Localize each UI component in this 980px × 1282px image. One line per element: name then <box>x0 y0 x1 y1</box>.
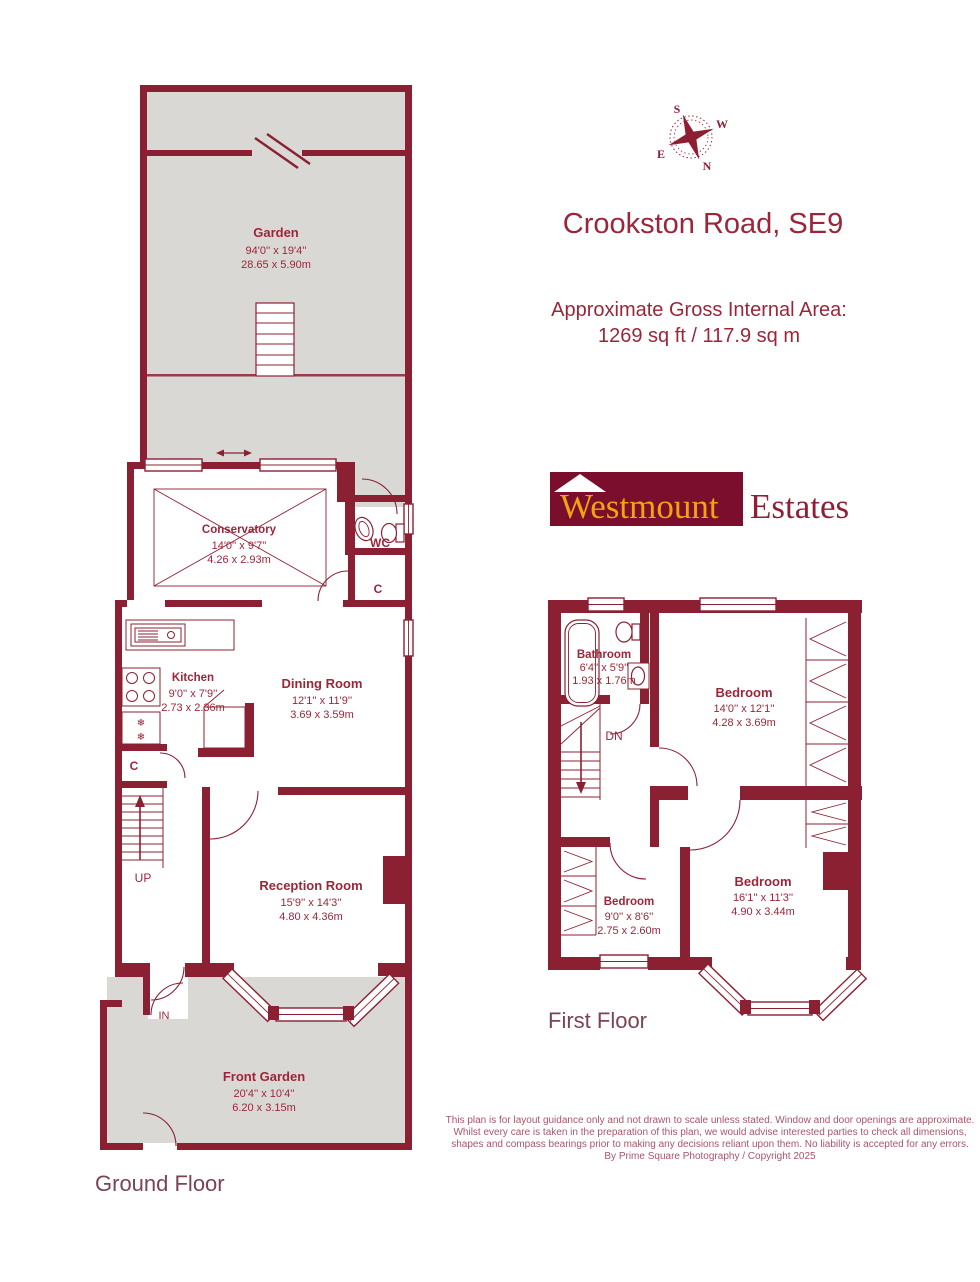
wc-wall-left <box>345 495 352 555</box>
svg-text:6.20 x 3.15m: 6.20 x 3.15m <box>232 1102 296 1114</box>
svg-text:16'1'' x 11'3'': 16'1'' x 11'3'' <box>733 892 793 904</box>
bedroom3-label: Bedroom 16'1'' x 11'3'' 4.90 x 3.44m <box>731 874 795 918</box>
garden-steps <box>256 303 294 376</box>
house-wall-top-seg1 <box>115 600 127 607</box>
bedroom2-wall-top <box>548 837 610 847</box>
wc-label: WC <box>370 536 390 550</box>
floorplan-svg: ❄ ❄ <box>0 0 980 1282</box>
kitchen-cupboard-wall-bottom <box>115 781 167 788</box>
ff-wall-left <box>548 600 561 970</box>
house-wall-top-seg3 <box>343 600 412 607</box>
svg-text:14'0'' x 9'7'': 14'0'' x 9'7'' <box>212 540 267 552</box>
logo-brand-text: Westmount <box>560 487 719 526</box>
svg-text:Garden: Garden <box>253 225 299 240</box>
bedroom2-label: Bedroom 9'0'' x 8'6'' 2.75 x 2.60m <box>597 896 661 937</box>
garden-wall-left <box>140 85 147 462</box>
svg-text:14'0'' x 12'1'': 14'0'' x 12'1'' <box>714 703 775 715</box>
svg-text:2.75 x 2.60m: 2.75 x 2.60m <box>597 925 661 937</box>
logo-suffix-text: Estates <box>750 487 849 526</box>
disclaimer-line: Whilst every care is taken in the prepar… <box>453 1127 966 1138</box>
svg-text:20'4'' x 10'4'': 20'4'' x 10'4'' <box>234 1088 295 1100</box>
svg-text:Bedroom: Bedroom <box>734 874 791 889</box>
conservatory-wall-left <box>127 462 134 600</box>
svg-text:12'1'' x 11'9'': 12'1'' x 11'9'' <box>292 695 352 707</box>
svg-text:Bedroom: Bedroom <box>604 896 654 908</box>
bathroom-wall-right <box>640 613 649 663</box>
bedroom3-chimney <box>823 852 848 890</box>
reception-fireplace <box>383 856 412 904</box>
reception-dividing-wall <box>278 787 412 795</box>
svg-text:Dining Room: Dining Room <box>282 676 363 691</box>
agency-logo: Westmount Estates <box>550 472 849 526</box>
snowflake-icon: ❄ <box>137 718 145 729</box>
svg-text:4.28 x 3.69m: 4.28 x 3.69m <box>712 717 776 729</box>
bedroom-divider-seg1 <box>650 786 688 800</box>
dining-window <box>404 620 413 656</box>
conservatory-window-right <box>260 459 336 471</box>
bedroom1-window <box>700 598 776 611</box>
compass-rose: S W E N <box>657 102 728 173</box>
front-gate-opening <box>143 1143 177 1150</box>
svg-text:4.26 x 2.93m: 4.26 x 2.93m <box>207 554 271 566</box>
ff-wall-bottom-seg1 <box>548 957 600 970</box>
wc-window <box>404 504 413 534</box>
disclaimer-line: By Prime Square Photography / Copyright … <box>604 1151 816 1162</box>
snowflake-icon: ❄ <box>137 732 145 743</box>
bedroom-divider-seg2 <box>740 786 862 800</box>
svg-text:94'0'' x 19'4'': 94'0'' x 19'4'' <box>246 245 307 257</box>
ground-floor-title: Ground Floor <box>95 1171 225 1196</box>
bathroom-window <box>588 598 624 611</box>
landing-wall-upper <box>650 613 659 747</box>
svg-text:Front Garden: Front Garden <box>223 1069 305 1084</box>
svg-text:Conservatory: Conservatory <box>202 524 277 536</box>
compass-south: S <box>674 102 681 116</box>
disclaimer-line: shapes and compass bearings prior to mak… <box>451 1139 969 1150</box>
svg-text:4.90 x 3.44m: 4.90 x 3.44m <box>731 906 795 918</box>
front-garden-wall-left <box>100 1000 107 1150</box>
svg-text:9'0'' x 8'6'': 9'0'' x 8'6'' <box>605 911 654 923</box>
dining-label: Dining Room 12'1'' x 11'9'' 3.69 x 3.59m <box>282 676 363 721</box>
svg-text:9'0'' x 7'9'': 9'0'' x 7'9'' <box>169 688 218 700</box>
garden-break-wall-right <box>302 150 405 156</box>
cupboard-right-label: C <box>374 582 383 596</box>
bathroom-wall-right-lower <box>640 689 649 704</box>
svg-text:3.69 x 3.59m: 3.69 x 3.59m <box>290 709 354 721</box>
front-garden-label: Front Garden 20'4'' x 10'4'' 6.20 x 3.15… <box>223 1069 305 1114</box>
compass-star-icon <box>668 114 713 159</box>
area-value: 1269 sq ft / 117.9 sq m <box>598 325 800 347</box>
page-title: Crookston Road, SE9 <box>563 208 843 240</box>
front-garden-wall-right <box>405 963 412 1150</box>
compass-north: N <box>703 159 712 173</box>
svg-text:4.80 x 4.36m: 4.80 x 4.36m <box>279 911 343 923</box>
ground-floor-plan: ❄ ❄ <box>95 85 413 1196</box>
bathroom-label: Bathroom 6'4'' x 5'9'' 1.93 x 1.76m <box>572 649 636 687</box>
garden-wall-top <box>140 85 412 92</box>
svg-text:2.73 x 2.36m: 2.73 x 2.36m <box>161 702 225 714</box>
cupboard-hall-label: C <box>130 759 139 773</box>
first-floor-title: First Floor <box>548 1008 647 1033</box>
house-wall-left <box>115 600 122 977</box>
house-wall-top-seg2 <box>165 600 262 607</box>
hallway-wall <box>202 787 210 970</box>
svg-text:Bedroom: Bedroom <box>715 685 772 700</box>
svg-text:28.65 x 5.90m: 28.65 x 5.90m <box>241 259 311 271</box>
dn-label: DN <box>605 729 622 743</box>
porch-wall-left <box>143 963 150 1015</box>
bedroom1-label: Bedroom 14'0'' x 12'1'' 4.28 x 3.69m <box>712 685 776 729</box>
ff-wall-right <box>848 600 861 963</box>
garden-break-wall-left <box>147 150 252 156</box>
chimney-breast-wall-right <box>245 703 254 757</box>
svg-text:1.93 x 1.76m: 1.93 x 1.76m <box>572 675 636 687</box>
toilet-icon <box>616 622 640 642</box>
conservatory-label: Conservatory 14'0'' x 9'7'' 4.26 x 2.93m <box>202 524 277 566</box>
up-label: UP <box>135 871 152 885</box>
kitchen-cupboard-wall-top <box>115 744 167 751</box>
svg-text:15'9'' x 14'3'': 15'9'' x 14'3'' <box>281 897 342 909</box>
floorplan-page: ❄ ❄ <box>0 0 980 1282</box>
svg-text:6'4'' x 5'9'': 6'4'' x 5'9'' <box>580 662 629 674</box>
first-floor-plan: Bathroom 6'4'' x 5'9'' 1.93 x 1.76m DN B… <box>548 598 866 1033</box>
svg-text:Reception Room: Reception Room <box>259 878 362 893</box>
in-label: IN <box>159 1010 170 1022</box>
svg-text:Bathroom: Bathroom <box>577 649 631 661</box>
disclaimer-line: This plan is for layout guidance only an… <box>446 1115 975 1126</box>
bedroom2-window <box>600 955 648 968</box>
disclaimer: This plan is for layout guidance only an… <box>446 1115 975 1162</box>
bedroom2-wall-right <box>680 847 690 970</box>
svg-text:Kitchen: Kitchen <box>172 672 214 684</box>
compass-east: E <box>657 147 665 161</box>
area-heading: Approximate Gross Internal Area: <box>551 299 847 321</box>
wc-wall-top <box>345 495 412 502</box>
compass-west: W <box>716 117 728 131</box>
conservatory-window-left <box>145 459 202 471</box>
